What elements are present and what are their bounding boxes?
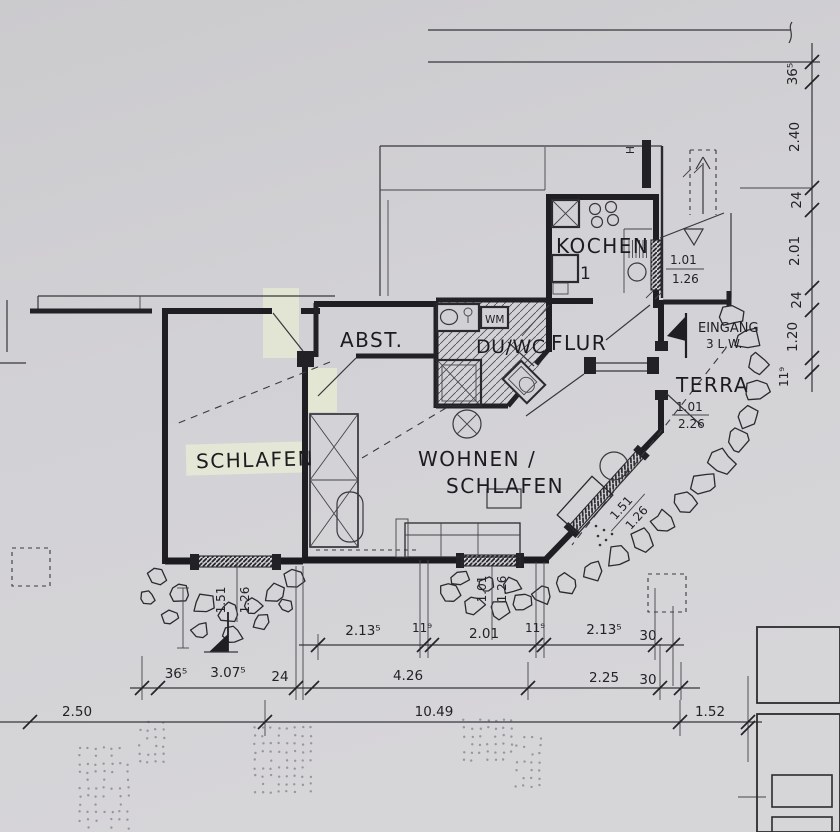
dim-schlafen-window-w: 1.51 — [214, 587, 228, 614]
dim-right-3: 2.01 — [787, 236, 803, 266]
dim-schlafen-window-h: 1.26 — [238, 587, 252, 614]
dim-row1-3: 11⁹ — [525, 621, 545, 635]
dim-row2-3: 4.26 — [393, 668, 423, 684]
dim-row3-1: 10.49 — [415, 704, 454, 720]
dim-row1-5: 30 — [639, 628, 656, 644]
label-eingang: EINGANG — [698, 321, 759, 336]
room-label-duwc: DU/WC — [476, 336, 546, 358]
room-label-wm: WM — [485, 314, 504, 326]
dim-row3-0: 2.50 — [62, 704, 92, 720]
dim-right-1: 2.40 — [787, 122, 803, 152]
shaft-block — [642, 140, 651, 188]
dim-right-2: 24 — [789, 191, 805, 208]
room-label-wohnen-2: SCHLAFEN — [446, 474, 564, 498]
dim-row2-0: 36⁵ — [165, 666, 188, 682]
dim-terra-door-h: 2.26 — [678, 417, 705, 431]
dim-right-4: 24 — [789, 291, 805, 308]
dim-wohnen-window-w: 1.01 — [475, 576, 489, 603]
dim-right-0: 36⁵ — [785, 63, 801, 86]
label-eingang-width: 3 L.W. — [706, 337, 742, 351]
dim-row1-2: 2.01 — [469, 626, 499, 642]
label-shaft-h: H — [625, 146, 637, 154]
room-label-schlafen: SCHLAFEN — [196, 446, 315, 473]
dim-row3-2: 1.52 — [695, 704, 725, 720]
dim-wohnen-window-h: 1.26 — [495, 576, 509, 603]
dim-kochen-window-h: 1.26 — [672, 272, 699, 286]
dim-row2-4: 2.25 — [589, 670, 619, 686]
dim-row1-1: 11⁹ — [412, 621, 432, 635]
dim-kochen-window-w: 1.01 — [670, 253, 697, 267]
dim-terra-door-w: 1.01 — [676, 400, 703, 414]
kochen-window — [651, 240, 661, 290]
room-label-abst: ABST. — [340, 328, 403, 352]
floor-plan: 1.51 1.26 — [0, 0, 840, 832]
dim-row1-0: 2.13⁵ — [345, 623, 380, 639]
room-label-kochen: KOCHEN — [556, 234, 649, 258]
label-kitchen-item: 1 — [580, 264, 591, 284]
dim-right-6: 11⁹ — [777, 367, 791, 387]
dim-row2-5: 30 — [639, 672, 656, 688]
room-label-flur: FLUR — [551, 331, 607, 355]
room-label-wohnen-1: WOHNEN / — [418, 447, 536, 471]
room-label-terra: TERRA — [675, 373, 749, 397]
dim-row2-2: 24 — [271, 669, 288, 685]
dim-row1-4: 2.13⁵ — [586, 622, 621, 638]
dim-row2-1: 3.07⁵ — [210, 665, 245, 681]
dim-right-5: 1.20 — [785, 322, 801, 352]
